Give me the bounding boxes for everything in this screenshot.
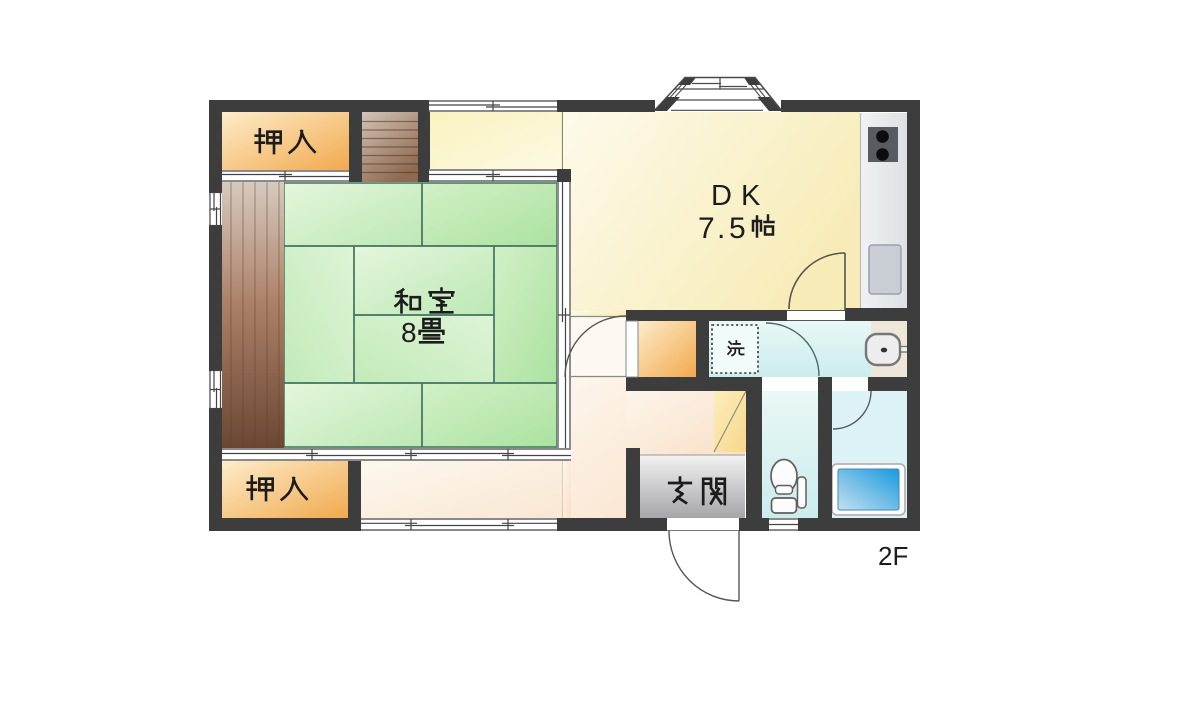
svg-text:2F: 2F xyxy=(878,541,908,571)
svg-text:DK: DK xyxy=(711,180,769,212)
svg-text:.: . xyxy=(717,212,725,245)
svg-text:5: 5 xyxy=(729,212,746,245)
svg-text:8: 8 xyxy=(401,317,417,348)
svg-text:7: 7 xyxy=(698,212,715,245)
